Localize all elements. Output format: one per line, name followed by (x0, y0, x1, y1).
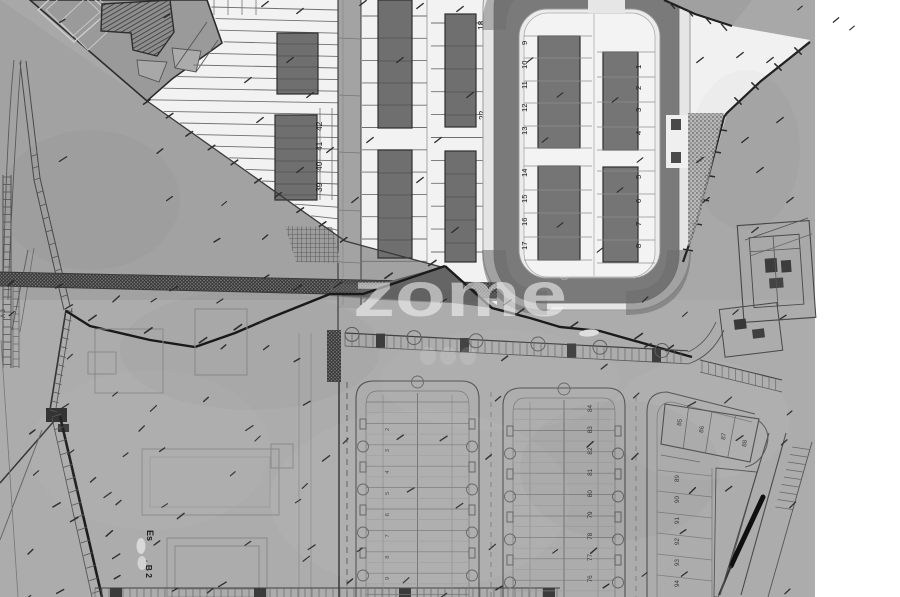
svg-text:2: 2 (634, 86, 643, 90)
svg-text:41: 41 (314, 141, 324, 151)
svg-text:16: 16 (520, 218, 529, 226)
svg-text:11: 11 (520, 81, 529, 89)
svg-text:3: 3 (634, 108, 643, 112)
svg-text:zome: zome (353, 259, 567, 330)
svg-text:17: 17 (520, 242, 529, 250)
svg-text:1: 1 (634, 65, 643, 69)
svg-text:5: 5 (634, 175, 643, 179)
svg-text:94: 94 (674, 580, 681, 587)
svg-text:40: 40 (314, 161, 324, 171)
svg-text:13: 13 (520, 127, 529, 135)
svg-text:93: 93 (674, 559, 681, 566)
svg-text:92: 92 (674, 538, 681, 545)
svg-text:®: ® (560, 269, 569, 283)
svg-text:4: 4 (634, 131, 643, 135)
svg-text:A 3: A 3 (1, 309, 7, 318)
svg-text:14: 14 (520, 169, 529, 177)
svg-text:8: 8 (634, 244, 643, 248)
svg-text:9: 9 (520, 41, 529, 45)
svg-text:Es: Es (145, 530, 155, 541)
svg-text:15: 15 (520, 195, 529, 203)
svg-text:77: 77 (587, 554, 594, 562)
svg-text:6: 6 (634, 199, 643, 203)
svg-text:12: 12 (520, 104, 529, 112)
svg-text:7: 7 (634, 222, 643, 226)
svg-text:76: 76 (587, 575, 594, 583)
